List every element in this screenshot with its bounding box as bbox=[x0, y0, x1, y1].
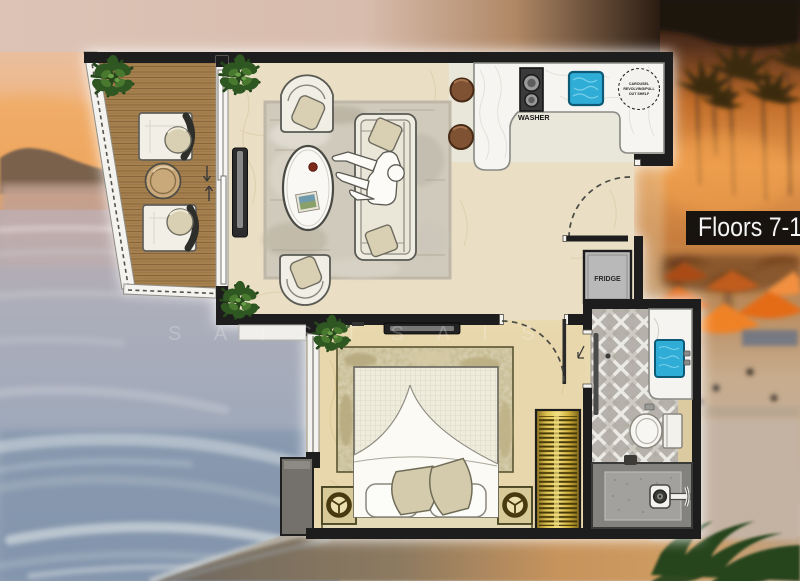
svg-text:OUT SHELF: OUT SHELF bbox=[629, 92, 650, 96]
svg-text:S A I S T S A I S: S A I S T S A I S bbox=[168, 323, 549, 345]
svg-text:REVOLVING/PULL: REVOLVING/PULL bbox=[623, 87, 655, 91]
svg-text:Floors 7-10: Floors 7-10 bbox=[698, 212, 800, 242]
svg-text:WASHER: WASHER bbox=[518, 113, 550, 122]
svg-text:CAROUSEL: CAROUSEL bbox=[629, 82, 650, 86]
svg-text:FRIDGE: FRIDGE bbox=[594, 276, 621, 283]
